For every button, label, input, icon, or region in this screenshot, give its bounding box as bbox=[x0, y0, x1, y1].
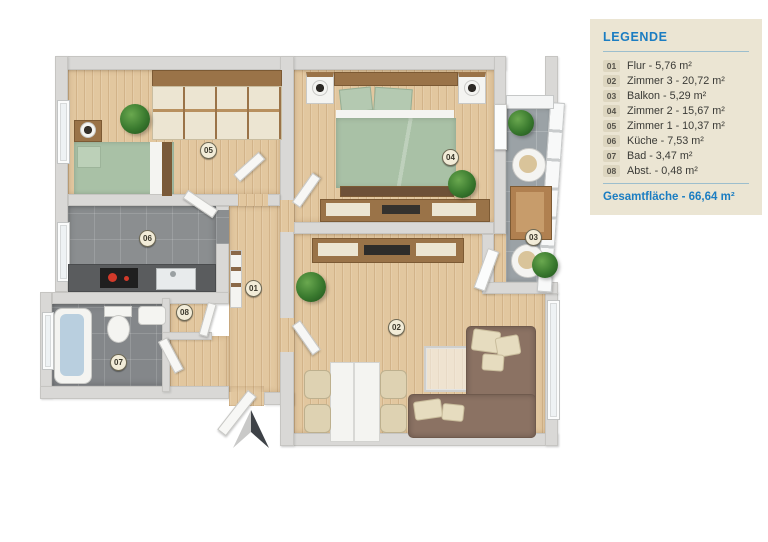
window-bath bbox=[42, 312, 54, 370]
room-badge-01: 01 bbox=[245, 280, 262, 297]
wall-hall-spine bbox=[280, 56, 294, 446]
wall-room04-bottom bbox=[294, 222, 494, 234]
tv-unit-doors-room02 bbox=[318, 243, 358, 256]
north-arrow-right-half bbox=[251, 410, 269, 448]
legend-item-text: Flur - 5,76 m² bbox=[627, 60, 692, 72]
duvet-room04 bbox=[336, 118, 456, 188]
wall-bath-bottom bbox=[40, 386, 229, 399]
dining-chair-1 bbox=[304, 370, 331, 399]
sideboard-doors2-room04 bbox=[432, 203, 476, 216]
legend-item-text: Zimmer 1 - 10,37 m² bbox=[627, 120, 725, 132]
opening-room05 bbox=[238, 194, 268, 206]
legend-item: 03 Balkon - 5,29 m² bbox=[603, 90, 749, 102]
legend-item-number: 06 bbox=[603, 135, 620, 147]
legend-item: 05 Zimmer 1 - 10,37 m² bbox=[603, 120, 749, 132]
room-badge-05: 05 bbox=[200, 142, 217, 159]
legend-item-number: 04 bbox=[603, 105, 620, 117]
sofa-pillow-3 bbox=[481, 353, 504, 371]
dining-chair-4 bbox=[380, 404, 407, 433]
balcony-chair-1-seat bbox=[519, 155, 537, 173]
window-room05 bbox=[57, 100, 70, 164]
sideboard-center-room04 bbox=[382, 205, 420, 214]
window-room02 bbox=[547, 300, 560, 420]
sofa-pillow-5 bbox=[441, 403, 465, 422]
legend-item: 02 Zimmer 3 - 20,72 m² bbox=[603, 75, 749, 87]
legend-item-text: Zimmer 2 - 15,67 m² bbox=[627, 105, 725, 117]
legend-item-text: Küche - 7,53 m² bbox=[627, 135, 704, 147]
opening-room04 bbox=[280, 200, 294, 232]
legend-item-number: 02 bbox=[603, 75, 620, 87]
balcony-table-top bbox=[516, 192, 544, 232]
dining-chair-2 bbox=[304, 404, 331, 433]
legend-divider-bottom bbox=[603, 183, 749, 184]
bed-frame-room05 bbox=[162, 142, 172, 196]
wardrobe-doors-room05 bbox=[152, 86, 282, 140]
legend-item: 06 Küche - 7,53 m² bbox=[603, 135, 749, 147]
room-badge-02: 02 bbox=[388, 319, 405, 336]
lamp-right-room04 bbox=[464, 80, 480, 96]
legend-item: 04 Zimmer 2 - 15,67 m² bbox=[603, 105, 749, 117]
plant-room02-corner bbox=[296, 272, 326, 302]
floorplan-page: { "legend": { "title": "LEGENDE", "items… bbox=[0, 0, 768, 542]
legend-item-number: 08 bbox=[603, 165, 620, 177]
dining-table bbox=[330, 362, 380, 442]
sideboard-doors-room04 bbox=[326, 203, 370, 216]
kitchen-faucet bbox=[170, 271, 176, 277]
wall-kitchen-bottom bbox=[52, 292, 229, 304]
legend-item-text: Zimmer 3 - 20,72 m² bbox=[627, 75, 725, 87]
legend-item-text: Abst. - 0,48 m² bbox=[627, 165, 698, 177]
legend-divider-top bbox=[603, 51, 749, 52]
opening-kitchen bbox=[216, 210, 229, 244]
legend-panel: LEGENDE 01 Flur - 5,76 m² 02 Zimmer 3 - … bbox=[590, 19, 762, 215]
tv-unit-doors2-room02 bbox=[416, 243, 456, 256]
legend-item-number: 07 bbox=[603, 150, 620, 162]
legend-item-number: 01 bbox=[603, 60, 620, 72]
lamp-room05 bbox=[80, 122, 96, 138]
room-badge-06: 06 bbox=[139, 230, 156, 247]
legend-total: Gesamtfläche - 66,64 m² bbox=[603, 191, 749, 203]
bathtub-water bbox=[60, 314, 84, 376]
hall-cabinet bbox=[230, 250, 242, 308]
toilet-bowl bbox=[107, 315, 130, 343]
legend-item: 08 Abst. - 0,48 m² bbox=[603, 165, 749, 177]
plant-room04 bbox=[448, 170, 476, 198]
stove-burner bbox=[108, 273, 117, 282]
legend-item: 01 Flur - 5,76 m² bbox=[603, 60, 749, 72]
footboard-room04 bbox=[340, 186, 454, 197]
room-badge-08: 08 bbox=[176, 304, 193, 321]
tv-room02 bbox=[364, 245, 410, 255]
legend-title: LEGENDE bbox=[603, 30, 749, 44]
balcony-railing-top bbox=[506, 95, 554, 109]
sofa-pillow-4 bbox=[413, 398, 443, 421]
north-arrow-left-half bbox=[233, 410, 251, 448]
stove bbox=[100, 268, 138, 288]
north-arrow-icon bbox=[233, 410, 269, 448]
plant-balcony-top bbox=[508, 110, 534, 136]
legend-item-number: 05 bbox=[603, 120, 620, 132]
kitchen-sink bbox=[156, 268, 196, 290]
dining-chair-3 bbox=[380, 370, 407, 399]
door-balcony-room04 bbox=[494, 104, 507, 150]
legend-item-text: Balkon - 5,29 m² bbox=[627, 90, 706, 102]
plant-balcony-bottom bbox=[532, 252, 558, 278]
lamp-left-room04 bbox=[312, 80, 328, 96]
room-badge-03: 03 bbox=[525, 229, 542, 246]
legend-item: 07 Bad - 3,47 m² bbox=[603, 150, 749, 162]
room-badge-07: 07 bbox=[110, 354, 127, 371]
bed-sheet-room05 bbox=[150, 142, 162, 194]
opening-room02 bbox=[280, 318, 294, 352]
plant-room05 bbox=[120, 104, 150, 134]
legend-item-text: Bad - 3,47 m² bbox=[627, 150, 692, 162]
legend-item-number: 03 bbox=[603, 90, 620, 102]
pillow-room05 bbox=[77, 146, 101, 168]
bath-sink bbox=[138, 306, 166, 325]
headboard-room04 bbox=[334, 72, 458, 86]
room-badge-04: 04 bbox=[442, 149, 459, 166]
